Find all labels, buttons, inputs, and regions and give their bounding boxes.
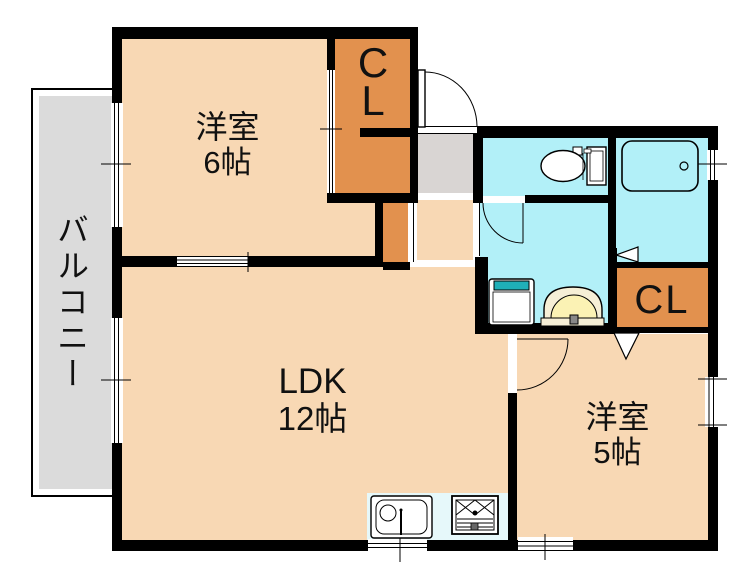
closet-main-letter-l: L	[342, 82, 404, 120]
wall-segment	[508, 393, 517, 540]
closet-bedroom5-label: CL	[613, 278, 711, 323]
window-icon	[111, 318, 123, 443]
kitchen-counter	[367, 493, 510, 540]
entry-threshold	[418, 126, 477, 134]
wall-segment	[608, 137, 616, 248]
wall-segment	[112, 27, 418, 39]
ldk-label: LDK 12帖	[230, 362, 395, 438]
hall-closet-floor	[383, 203, 408, 262]
wall-segment	[473, 133, 483, 203]
wall-segment	[327, 27, 335, 70]
window-icon	[707, 150, 719, 180]
entry-door-icon	[418, 70, 477, 127]
window-icon	[111, 103, 123, 227]
bedroom6-nook-floor	[327, 203, 375, 256]
wall-segment	[610, 262, 708, 268]
bedroom5-size: 5帖	[535, 436, 700, 471]
entry-floor	[417, 133, 473, 196]
wall-segment	[383, 262, 410, 270]
wall-segment	[475, 323, 617, 334]
bedroom5-label: 洋室 5帖	[535, 400, 700, 471]
floor-plan: バルコニー 洋室 6帖 LDK 12帖 洋室 5帖 C L CL	[0, 0, 743, 578]
toilet-room-floor	[483, 138, 608, 196]
wall-segment	[525, 195, 616, 203]
hall-closet-door	[408, 203, 417, 262]
closet-main-label: C L	[342, 44, 404, 120]
window-icon	[518, 537, 573, 550]
hallway-floor	[417, 200, 473, 267]
balcony-label: バルコニー	[46, 198, 88, 408]
ldk-size: 12帖	[230, 401, 395, 438]
entry-step	[417, 193, 473, 200]
window-icon	[705, 377, 719, 427]
bathroom-floor	[616, 138, 708, 262]
bedroom6-name: 洋室	[145, 110, 310, 146]
closet-door-track	[327, 70, 335, 193]
wall-segment	[410, 27, 418, 203]
wall-segment	[610, 327, 718, 333]
bedroom5-name: 洋室	[535, 400, 700, 436]
bedroom6-size: 6帖	[145, 146, 310, 181]
washroom-floor	[480, 203, 608, 323]
bedroom6-label: 洋室 6帖	[145, 110, 310, 181]
wall-segment	[708, 128, 718, 551]
wall-segment	[360, 128, 410, 137]
sliding-door-icon	[177, 257, 248, 266]
wall-segment	[327, 193, 410, 203]
window-icon	[368, 539, 427, 552]
wall-segment	[473, 126, 718, 138]
wall-segment	[375, 203, 383, 262]
hallway-threshold	[417, 260, 473, 267]
ldk-name: LDK	[230, 362, 395, 401]
